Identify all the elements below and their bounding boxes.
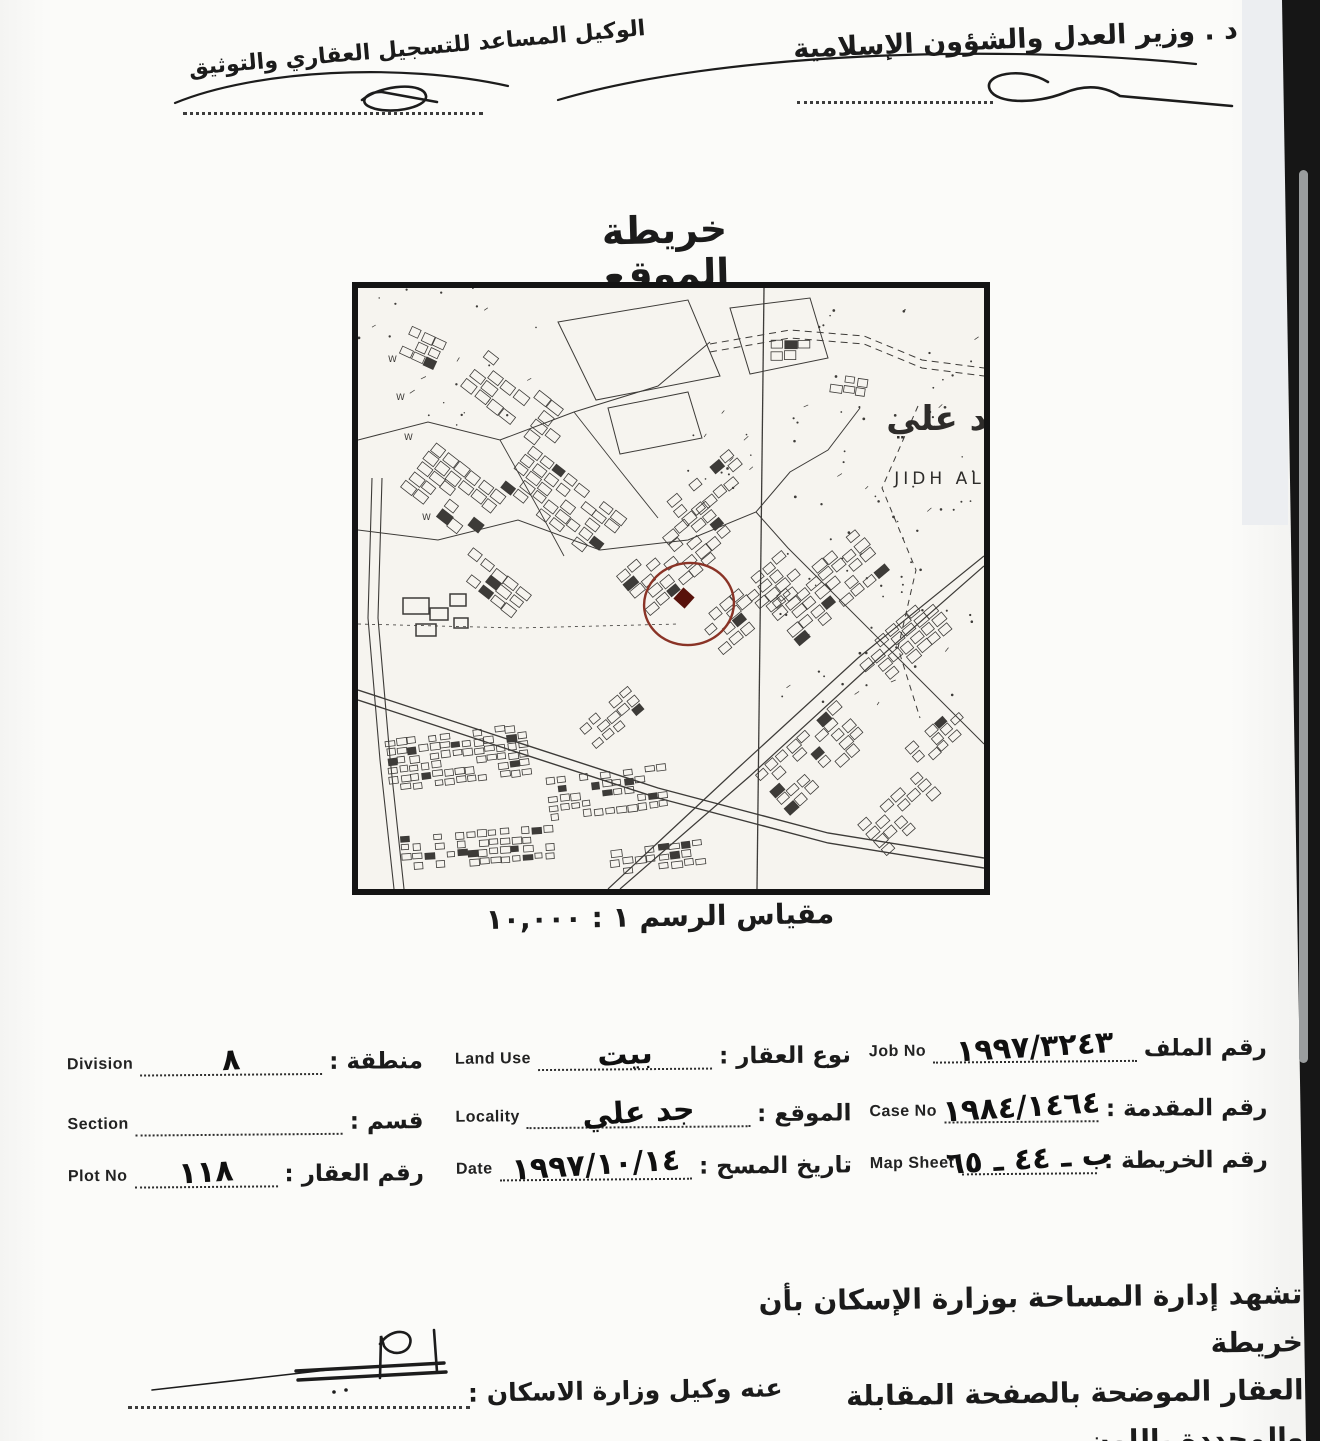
field-land-use-label-en: Land Use <box>455 1050 531 1072</box>
scanned-survey-document: د . وزير العدل والشؤون الإسلامية الوكيل … <box>0 0 1320 1441</box>
field-map-sheet-value: ب ـ ٤٤ ـ ٦٥ <box>945 1137 1113 1182</box>
field-plot-no-label-en: Plot No <box>68 1168 128 1190</box>
field-land-use: Land Use بيت نوع العقار : <box>455 1036 851 1071</box>
certification-line-1: تشهد إدارة المساحة بوزارة الإسكان بأن خر… <box>757 1270 1303 1374</box>
field-case-no-value: ١٩٨٤/١٤٦٤ <box>942 1085 1101 1130</box>
scrollbar-thumb[interactable] <box>1299 170 1308 1063</box>
signatory-dotted-line <box>128 1406 470 1409</box>
field-case-no-label-en: Case No <box>869 1103 937 1125</box>
field-survey-date-value: ١٩٩٧/١٠/١٤ <box>511 1142 681 1187</box>
field-map-sheet-label-en: Map Sheet <box>870 1154 955 1176</box>
field-job-no: Job No ١٩٩٧/٣٢٤٣ رقم الملف <box>869 1029 1267 1064</box>
field-plot-no-value: ١١٨ <box>177 1153 234 1191</box>
field-division: Division ٨ منطقة : <box>67 1042 423 1077</box>
field-land-use-leader: بيت <box>538 1038 712 1072</box>
field-division-value: ٨ <box>221 1042 241 1078</box>
field-plot-no: Plot No ١١٨ رقم العقار : <box>68 1154 424 1189</box>
field-survey-date-leader: ١٩٩٧/١٠/١٤ <box>499 1148 692 1182</box>
field-survey-date-label-en: Date <box>456 1160 493 1181</box>
field-locality: Locality جد علي الموقع : <box>455 1094 851 1129</box>
field-section-label-en: Section <box>67 1116 128 1138</box>
signatory-caption: عنه وكيل وزارة الاسكان : <box>468 1373 783 1407</box>
field-locality-value: جد علي <box>581 1092 695 1134</box>
field-survey-date: Date ١٩٩٧/١٠/١٤ تاريخ المسح : <box>456 1146 852 1181</box>
field-survey-date-label-ar: تاريخ المسح : <box>699 1152 852 1179</box>
field-case-no-label-ar: رقم المقدمة : <box>1106 1095 1268 1122</box>
field-map-sheet-leader: ب ـ ٤٤ ـ ٦٥ <box>961 1142 1097 1175</box>
field-division-label-ar: منطقة : <box>329 1048 423 1075</box>
survey-form: Division ٨ منطقة : Section قسم : Plot No… <box>0 0 1320 1441</box>
field-locality-leader: جد علي <box>527 1095 750 1129</box>
field-plot-no-leader: ١١٨ <box>134 1155 277 1188</box>
field-division-leader: ٨ <box>140 1043 322 1077</box>
field-job-no-label-ar: رقم الملف <box>1144 1035 1267 1062</box>
field-job-no-leader: ١٩٩٧/٣٢٤٣ <box>933 1030 1137 1064</box>
field-division-label-en: Division <box>67 1056 133 1078</box>
field-section-label-ar: قسم : <box>350 1108 424 1135</box>
field-case-no: Case No ١٩٨٤/١٤٦٤ رقم المقدمة : <box>869 1089 1267 1124</box>
certification-line-2: العقار الموضحة بالصفحة المقابلة والمحددة… <box>758 1366 1304 1441</box>
field-section-leader <box>136 1103 343 1137</box>
field-job-no-value: ١٩٩٧/٣٢٤٣ <box>955 1025 1114 1070</box>
field-map-sheet: Map Sheet ب ـ ٤٤ ـ ٦٥ رقم الخريطة : <box>870 1141 1268 1176</box>
field-locality-label-en: Locality <box>455 1108 520 1130</box>
field-locality-label-ar: الموقع : <box>757 1100 852 1127</box>
field-map-sheet-label-ar: رقم الخريطة : <box>1104 1147 1268 1174</box>
field-land-use-value: بيت <box>596 1036 653 1074</box>
field-land-use-label-ar: نوع العقار : <box>719 1042 851 1069</box>
field-plot-no-label-ar: رقم العقار : <box>284 1160 424 1187</box>
certification-text: تشهد إدارة المساحة بوزارة الإسكان بأن خر… <box>757 1270 1306 1441</box>
field-job-no-label-en: Job No <box>869 1043 926 1064</box>
field-case-no-leader: ١٩٨٤/١٤٦٤ <box>944 1090 1099 1123</box>
field-section: Section قسم : <box>67 1102 423 1137</box>
